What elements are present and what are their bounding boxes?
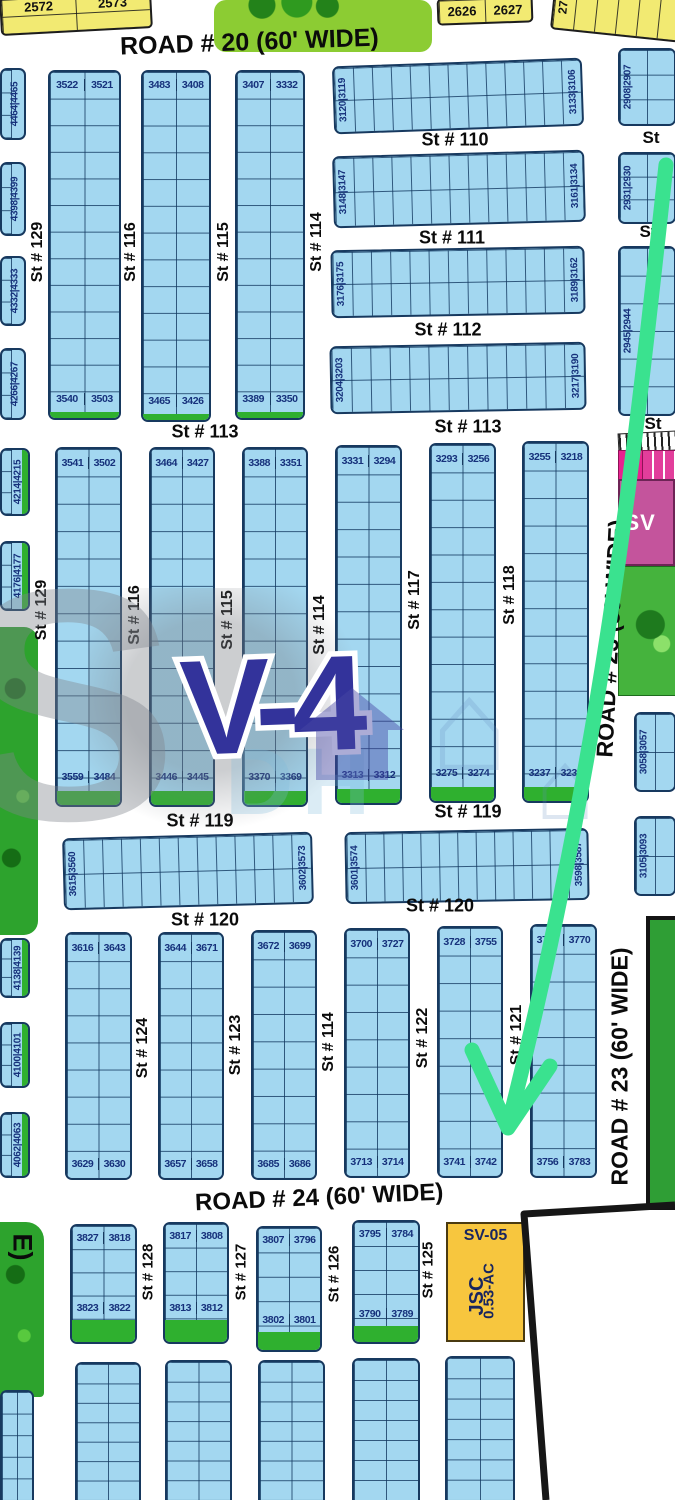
plot-number: 4266|4267 <box>10 362 21 407</box>
plot-numbers-right: 3189|3162 <box>566 248 583 312</box>
plot-block-column: 3700372737133714 <box>344 928 410 1178</box>
plot-number: 3801 <box>289 1314 321 1326</box>
plot-number: 3672 <box>253 940 284 952</box>
plot-number: 3483 <box>143 79 176 91</box>
plot-numbers-bottom: 37903789 <box>354 1302 418 1326</box>
side-plot-block: 4214|4215 <box>0 448 30 516</box>
side-plot-cells <box>2 1024 12 1086</box>
plot-number: 3727 <box>377 938 409 950</box>
plot-numbers-right: 3133|3106 <box>564 60 582 125</box>
plot-number: 3790 <box>354 1308 386 1320</box>
plot-block-plain <box>445 1356 515 1500</box>
plot-number: 3601|3574 <box>349 846 361 891</box>
plot-number: 3700 <box>346 938 377 950</box>
yellow-grid <box>552 0 675 40</box>
street-label: St # 113 <box>171 422 238 443</box>
pink-cells-strip <box>642 450 675 481</box>
side-plot-block: 4464|4465 <box>0 68 26 140</box>
plot-numbers-top: 38073796 <box>258 1228 320 1252</box>
green-strip <box>354 1326 418 1342</box>
plot-numbers-bottom: 34653426 <box>143 387 209 414</box>
plot-number: 3827 <box>72 1232 103 1244</box>
plot-numbers-top: 33883351 <box>244 449 306 476</box>
plot-number: 4464|4465 <box>10 82 21 127</box>
plot-numbers-bottom: 38023801 <box>258 1308 320 1332</box>
plot-number: 4332|4333 <box>10 269 21 314</box>
road-left-fragment-label: E) <box>7 1234 38 1294</box>
plot-numbers-top: 33313294 <box>337 447 400 474</box>
plot-number: 3408 <box>176 79 210 91</box>
plot-number: 3686 <box>284 1158 316 1170</box>
green-strip <box>165 1320 227 1342</box>
plot-number: 3629 <box>67 1158 98 1170</box>
street-label: St # 115 <box>215 222 233 282</box>
plot-numbers-top: 36723699 <box>253 932 315 959</box>
plot-number: 3812 <box>196 1302 228 1314</box>
street-label: St # 114 <box>308 212 326 272</box>
plot-number: 3813 <box>165 1302 196 1314</box>
plot-number: 3120|3119 <box>337 78 350 122</box>
plot-number: 3795 <box>354 1228 386 1240</box>
plot-number: 3407 <box>237 79 270 91</box>
plot-block-plain <box>258 1360 325 1500</box>
plot-grid <box>331 344 584 412</box>
plot-number: 3189|3162 <box>569 258 581 303</box>
plot-number: 3741 <box>439 1156 470 1168</box>
plot-numbers-top: 37283755 <box>439 928 501 956</box>
plot-number: 3465 <box>143 395 176 407</box>
plot-number: 3388 <box>244 457 275 469</box>
parcel-sv05-name: SV-05 <box>448 1227 523 1245</box>
plot-number: 3218 <box>555 451 587 463</box>
plot-block-column: 3644367136573658 <box>158 932 224 1180</box>
street-label: St # 120 <box>171 910 239 931</box>
plot-number: 3643 <box>98 942 130 954</box>
plot-block-column: 3522352135403503 <box>48 70 121 420</box>
plot-numbers-top: 36163643 <box>67 934 130 961</box>
plot-grid <box>260 1362 323 1500</box>
plot-block-plain <box>352 1358 420 1500</box>
plot-block-column: 3807379638023801 <box>256 1226 322 1352</box>
watermark-house-icon: ⌂ <box>535 735 595 835</box>
plot-grid <box>253 932 315 1178</box>
plot-block-plain <box>165 1360 232 1500</box>
plot-number: 3808 <box>196 1230 228 1242</box>
side-plot-block: 4138|4139 <box>0 938 30 998</box>
plot-numbers-top: 32933256 <box>431 445 494 472</box>
plot-number: 3756 <box>532 1156 563 1168</box>
green-strip <box>22 1024 28 1086</box>
plot-numbers-top: 35413502 <box>57 449 120 476</box>
plot-number: 3540 <box>50 393 84 405</box>
plot-numbers-bottom: 36853686 <box>253 1151 315 1178</box>
plot-numbers-bottom: 37413742 <box>439 1148 501 1176</box>
parcel-168: 168 <box>618 450 644 481</box>
plot-number: 3293 <box>431 453 462 465</box>
plot-numbers-left: 3058|3057 <box>636 714 652 790</box>
plot-number: 3332 <box>270 79 304 91</box>
plot-numbers-bottom: 38233822 <box>72 1297 135 1320</box>
plot-number: 3685 <box>253 1158 284 1170</box>
street-label: St # 125 <box>420 1242 437 1299</box>
parcel-sv05-area: 0.53-AC <box>481 1263 498 1319</box>
plot-block-column: 3827381838233822 <box>70 1224 137 1344</box>
plot-block-row: 2908|2907 <box>618 48 675 126</box>
plot-numbers-left: 2945|2944 <box>620 248 636 414</box>
road-23-lower-label: ROAD # 23 (60' WIDE) <box>607 902 634 1232</box>
plot-numbers-left: 2931|2930 <box>620 154 636 222</box>
side-plot-block: 4332|4333 <box>0 256 26 326</box>
plot-number: 3331 <box>337 455 368 467</box>
plot-number: 3294 <box>368 455 400 467</box>
plot-numbers-left: 3148|3147 <box>334 158 352 226</box>
street-label: St # 128 <box>140 1244 157 1301</box>
plot-numbers-bottom: 36573658 <box>160 1151 222 1178</box>
plot-numbers-top: 34833408 <box>143 72 209 99</box>
plot-number: 3742 <box>470 1156 502 1168</box>
watermark-house-icon: ⌂ <box>430 660 509 790</box>
plot-block-column: 3672369936853686 <box>251 930 317 1180</box>
plot-numbers-top: 26262627 <box>439 0 532 24</box>
plot-numbers-left: 3120|3119 <box>334 68 352 133</box>
plot-number: 3350 <box>270 393 304 405</box>
plot-numbers-top: 34073332 <box>237 72 303 99</box>
street-label: St # 120 <box>406 896 474 917</box>
plot-grid <box>77 1364 139 1500</box>
green-strip <box>143 414 209 420</box>
plot-number: 3728 <box>439 936 470 948</box>
plot-grid <box>334 60 582 133</box>
plot-number: 3148|3147 <box>337 170 349 215</box>
street-label: St # 116 <box>122 222 140 282</box>
plot-block-row: 2931|2930 <box>618 152 675 224</box>
plot-number: 3389 <box>237 393 270 405</box>
green-strip <box>258 1332 320 1350</box>
plot-number: 3658 <box>191 1158 223 1170</box>
plot-number: 3789 <box>386 1308 419 1320</box>
plot-numbers-bottom: 35403503 <box>50 385 119 412</box>
parcel-sv05: SV-05 JSC 0.53-AC <box>446 1222 525 1342</box>
plot-number: 3503 <box>84 393 119 405</box>
street-label: St <box>643 128 660 148</box>
green-strip <box>22 450 28 514</box>
yellow-plot-block: 25722573 <box>0 0 153 36</box>
side-plot-cells <box>2 940 12 996</box>
street-label: St <box>645 414 662 434</box>
plot-numbers-top: 37693770 <box>532 926 595 954</box>
plot-number: 3616 <box>67 942 98 954</box>
plot-number: 2626 <box>439 3 485 20</box>
plot-numbers-top: 38173808 <box>165 1224 227 1248</box>
plot-number: 3522 <box>50 79 84 91</box>
plot-number: 3769 <box>532 934 563 946</box>
plot-numbers-top: 37953784 <box>354 1222 418 1246</box>
plot-number: 3802 <box>258 1314 289 1326</box>
plot-numbers-bottom: 37563783 <box>532 1148 595 1176</box>
street-label: St # 129 <box>29 222 47 282</box>
road-24-label: ROAD # 24 (60' WIDE) <box>195 1179 444 1218</box>
plot-grid <box>334 152 584 226</box>
plot-block-column: 3769377037563783 <box>530 924 597 1178</box>
plot-number: 3204|3203 <box>334 358 346 403</box>
plot-number: 3598|3587 <box>573 842 585 887</box>
plot-block-row: 3148|31473161|3134 <box>332 150 586 229</box>
plot-grid <box>160 934 222 1178</box>
plot-number: 4398|4399 <box>10 177 21 222</box>
street-label: St # 118 <box>501 565 519 625</box>
plot-block-row: 3058|3057 <box>634 712 675 792</box>
street-label: St # 110 <box>421 130 488 151</box>
side-plot-cells <box>2 1114 12 1176</box>
plot-numbers-bottom: 33893350 <box>237 385 303 412</box>
yellow-plot-block: 26262627 <box>437 0 534 26</box>
plot-number: 3630 <box>98 1158 130 1170</box>
plot-numbers-bottom: 38133812 <box>165 1296 227 1320</box>
plot-numbers-top: 35223521 <box>50 72 119 99</box>
side-plot-cells <box>2 450 12 514</box>
street-label: St # 122 <box>414 1008 432 1068</box>
plot-numbers-bottom: 36293630 <box>67 1151 130 1178</box>
plot-number: 3657 <box>160 1158 191 1170</box>
plot-block-column: 3728375537413742 <box>437 926 503 1178</box>
side-plot-block: 4266|4267 <box>0 348 26 420</box>
street-label: St <box>640 222 657 242</box>
plot-number: 3541 <box>57 457 88 469</box>
street-label: St # 113 <box>434 417 501 438</box>
plot-number: 3823 <box>72 1302 103 1314</box>
plot-grid <box>332 248 583 316</box>
plot-numbers-left: 3204|3203 <box>331 348 348 412</box>
plot-block-column: 3616364336293630 <box>65 932 132 1180</box>
plot-numbers-bottom: 37133714 <box>346 1149 408 1176</box>
plot-number: 3784 <box>386 1228 419 1240</box>
plot-grid <box>447 1358 513 1500</box>
plot-numbers-top: 38273818 <box>72 1226 135 1249</box>
plot-number: 3105|3093 <box>639 834 650 879</box>
side-plot-block: 4100|4101 <box>0 1022 30 1088</box>
street-label: St # 121 <box>508 1005 526 1065</box>
green-strip <box>72 1320 135 1342</box>
plot-number: 27 <box>555 0 570 15</box>
green-strip <box>22 1114 28 1176</box>
street-label: St # 123 <box>227 1015 245 1075</box>
green-strip-right-edge <box>646 916 675 1210</box>
plot-number: 2945|2944 <box>623 309 634 354</box>
plot-number: 3176|3175 <box>335 262 347 307</box>
green-strip <box>237 412 303 418</box>
plot-number: 3351 <box>275 457 307 469</box>
plot-number: 3426 <box>176 395 210 407</box>
plot-numbers-left: 3105|3093 <box>636 818 652 894</box>
plot-number: 3161|3134 <box>569 164 581 209</box>
plot-number: 3807 <box>258 1234 289 1246</box>
plot-numbers-top: 32553218 <box>524 443 587 471</box>
plot-grid <box>67 934 130 1178</box>
plot-numbers-left: 2908|2907 <box>620 50 636 124</box>
plot-numbers-right: 3602|3573 <box>294 834 312 902</box>
plot-number: 3755 <box>470 936 502 948</box>
plot-numbers-top: 36443671 <box>160 934 222 961</box>
plot-numbers-top: 34643427 <box>151 449 213 476</box>
plot-number: 3058|3057 <box>639 730 650 775</box>
plot-block-column: 3817380838133812 <box>163 1222 229 1344</box>
plot-number: 3464 <box>151 457 182 469</box>
watermark-ghost-letter: S <box>0 540 178 870</box>
plot-number: 3502 <box>88 457 120 469</box>
plot-number: 2908|2907 <box>623 65 634 110</box>
plot-number: 3783 <box>563 1156 595 1168</box>
plot-number: 3255 <box>524 451 555 463</box>
plot-block-column: 3483340834653426 <box>141 70 211 422</box>
plot-number: 3770 <box>563 934 595 946</box>
green-strip <box>50 412 119 418</box>
plot-grid <box>354 1360 418 1500</box>
plot-block-row: 3105|3093 <box>634 816 675 896</box>
road-20-label: ROAD # 20 (60' WIDE) <box>120 23 380 61</box>
plot-numbers-right: 3217|3190 <box>567 344 584 408</box>
street-label: St # 124 <box>134 1018 152 1078</box>
plot-grid <box>237 72 303 418</box>
plot-number: 3817 <box>165 1230 196 1242</box>
watermark-ghost-letters: DH <box>225 728 378 837</box>
yellow-plot-block: 27 <box>550 0 675 43</box>
plot-numbers-left: 3601|3574 <box>346 834 363 902</box>
plot-number: 3521 <box>84 79 119 91</box>
plot-numbers-top: 37003727 <box>346 930 408 957</box>
plot-block-row: 2945|2944 <box>618 246 675 416</box>
plot-numbers-right: 3161|3134 <box>566 152 584 220</box>
plot-grid <box>346 930 408 1176</box>
plot-grid <box>439 928 501 1176</box>
plot-grid <box>50 72 119 418</box>
street-label: St # 117 <box>406 570 424 630</box>
plot-number: 3822 <box>103 1302 135 1314</box>
parcel-168-label: 168 <box>626 457 637 474</box>
plot-block-row: 3176|31753189|3162 <box>330 246 585 318</box>
street-label: St # 111 <box>419 228 485 249</box>
plot-number: 3644 <box>160 942 191 954</box>
plot-number: 3427 <box>182 457 214 469</box>
plot-block-column: 3407333233893350 <box>235 70 305 420</box>
street-label: St # 127 <box>233 1244 250 1301</box>
plot-number: 3256 <box>462 453 494 465</box>
plot-number: 3699 <box>284 940 316 952</box>
plot-grid <box>167 1362 230 1500</box>
plot-number: 3602|3573 <box>297 846 309 891</box>
street-label: St # 112 <box>414 320 481 341</box>
plot-block-column: 3795378437903789 <box>352 1220 420 1344</box>
plot-grid <box>143 72 209 420</box>
plot-block-row: 3204|32033217|3190 <box>329 342 586 414</box>
plot-number: 3714 <box>377 1156 409 1168</box>
plot-block-plain <box>75 1362 141 1500</box>
side-plot-block: 4398|4399 <box>0 162 26 236</box>
plot-number: 3133|3106 <box>567 70 580 115</box>
plot-number: 2627 <box>485 1 531 18</box>
plot-number: 2931|2930 <box>623 166 634 211</box>
street-label: St # 119 <box>434 802 501 823</box>
street-label: St # 114 <box>320 1012 338 1072</box>
plot-number: 3671 <box>191 942 223 954</box>
plot-grid <box>2 1392 32 1500</box>
plot-number: 3796 <box>289 1234 321 1246</box>
plot-number: 2572 <box>1 0 76 16</box>
side-plot-block: 4062|4063 <box>0 1112 30 1178</box>
green-strip <box>22 940 28 996</box>
plot-grid <box>532 926 595 1176</box>
plot-number: 3818 <box>103 1232 135 1244</box>
plot-map-canvas: 168 SV SV-05 JSC 0.53-AC ROAD # 20 (60' … <box>0 0 675 1500</box>
street-label: St # 126 <box>326 1246 343 1303</box>
plot-number: 3713 <box>346 1156 377 1168</box>
plot-numbers-left: 3176|3175 <box>332 252 349 316</box>
plot-block-row: 3120|31193133|3106 <box>332 58 584 135</box>
plot-block-plain <box>0 1390 34 1500</box>
plot-number: 3217|3190 <box>570 354 582 399</box>
